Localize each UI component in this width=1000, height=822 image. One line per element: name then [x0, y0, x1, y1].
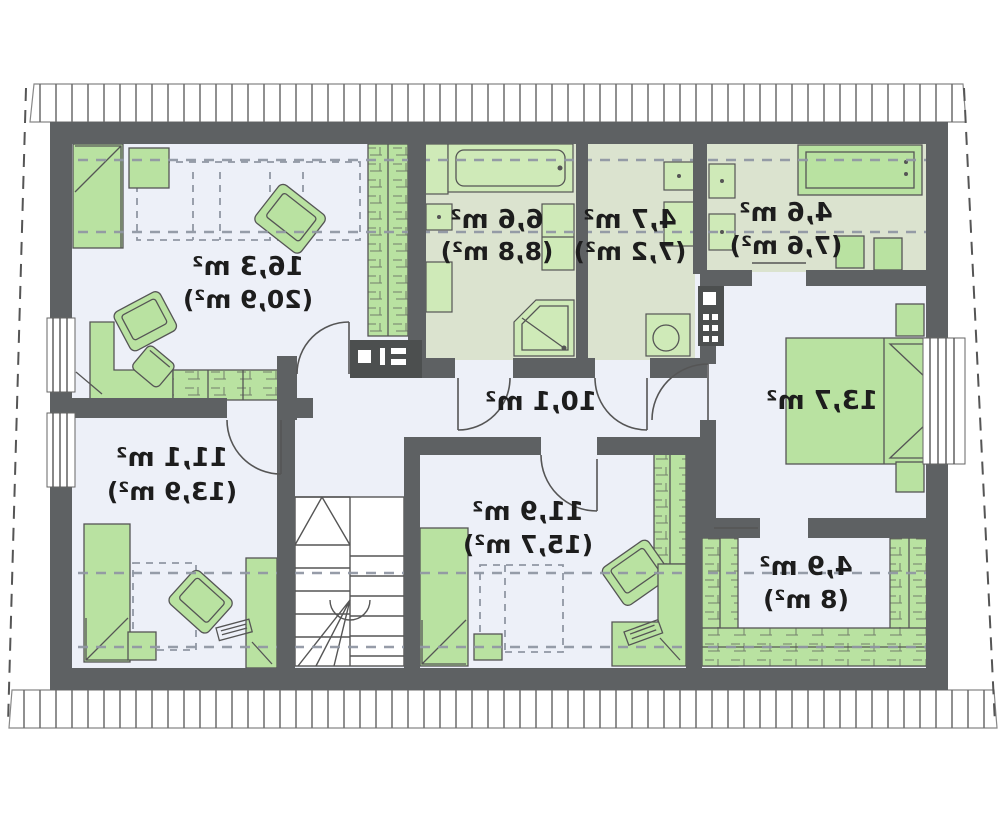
- room-area-label: 4,9 m²: [759, 552, 853, 582]
- room-area-label: 11,1 m²: [116, 443, 228, 473]
- room-area-label: 16,3 m²: [192, 252, 304, 282]
- room-area-label: 4,6 m²: [739, 198, 833, 228]
- room-area-label: 10,1 m²: [485, 387, 597, 417]
- floor-plan-canvas: 16,3 m² (20,9 m²) 6,6 m² (8,8 m²) 4,7 m²…: [0, 0, 1000, 822]
- bed-icon: [420, 528, 468, 666]
- room-area-label: 6,6 m²: [450, 205, 544, 235]
- roof-edge-dashed-right: [964, 88, 995, 724]
- roof-edge-dashed-left: [8, 88, 26, 724]
- bed-icon: [84, 524, 130, 662]
- window: [47, 318, 75, 392]
- nightstand-icon: [896, 462, 924, 492]
- staircase: [295, 497, 404, 666]
- room-gross-label: (8,8 m²): [441, 237, 554, 266]
- room-gross-label: (8 m²): [763, 585, 849, 614]
- room-area-label: 11,9 m²: [472, 497, 584, 527]
- bathtub-icon: [448, 144, 573, 192]
- chimney: [698, 286, 724, 346]
- stool-icon: [874, 238, 902, 270]
- exterior-wall-bottom: [50, 668, 948, 690]
- side-table-icon: [129, 148, 169, 188]
- toilet-icon: [646, 314, 690, 356]
- room-gross-label: (13,9 m²): [107, 477, 237, 506]
- floor-plan-page: 16,3 m² (20,9 m²) 6,6 m² (8,8 m²) 4,7 m²…: [0, 0, 1000, 822]
- room-area-label: 13,7 m²: [766, 386, 878, 416]
- exterior-wall-top: [50, 122, 948, 144]
- window: [47, 413, 75, 487]
- room-gross-label: (20,9 m²): [183, 285, 313, 314]
- room-area-label: 4,7 m²: [583, 205, 677, 235]
- bath-cabinet-icon: [426, 262, 452, 312]
- room-gross-label: (15,7 m²): [463, 530, 593, 559]
- window: [923, 338, 965, 464]
- nightstand-icon: [896, 304, 924, 336]
- counter-icon: [424, 144, 448, 194]
- room-gross-label: (7,6 m²): [730, 231, 843, 260]
- room-gross-label: (7,2 m²): [574, 237, 687, 266]
- chimney: [350, 340, 422, 378]
